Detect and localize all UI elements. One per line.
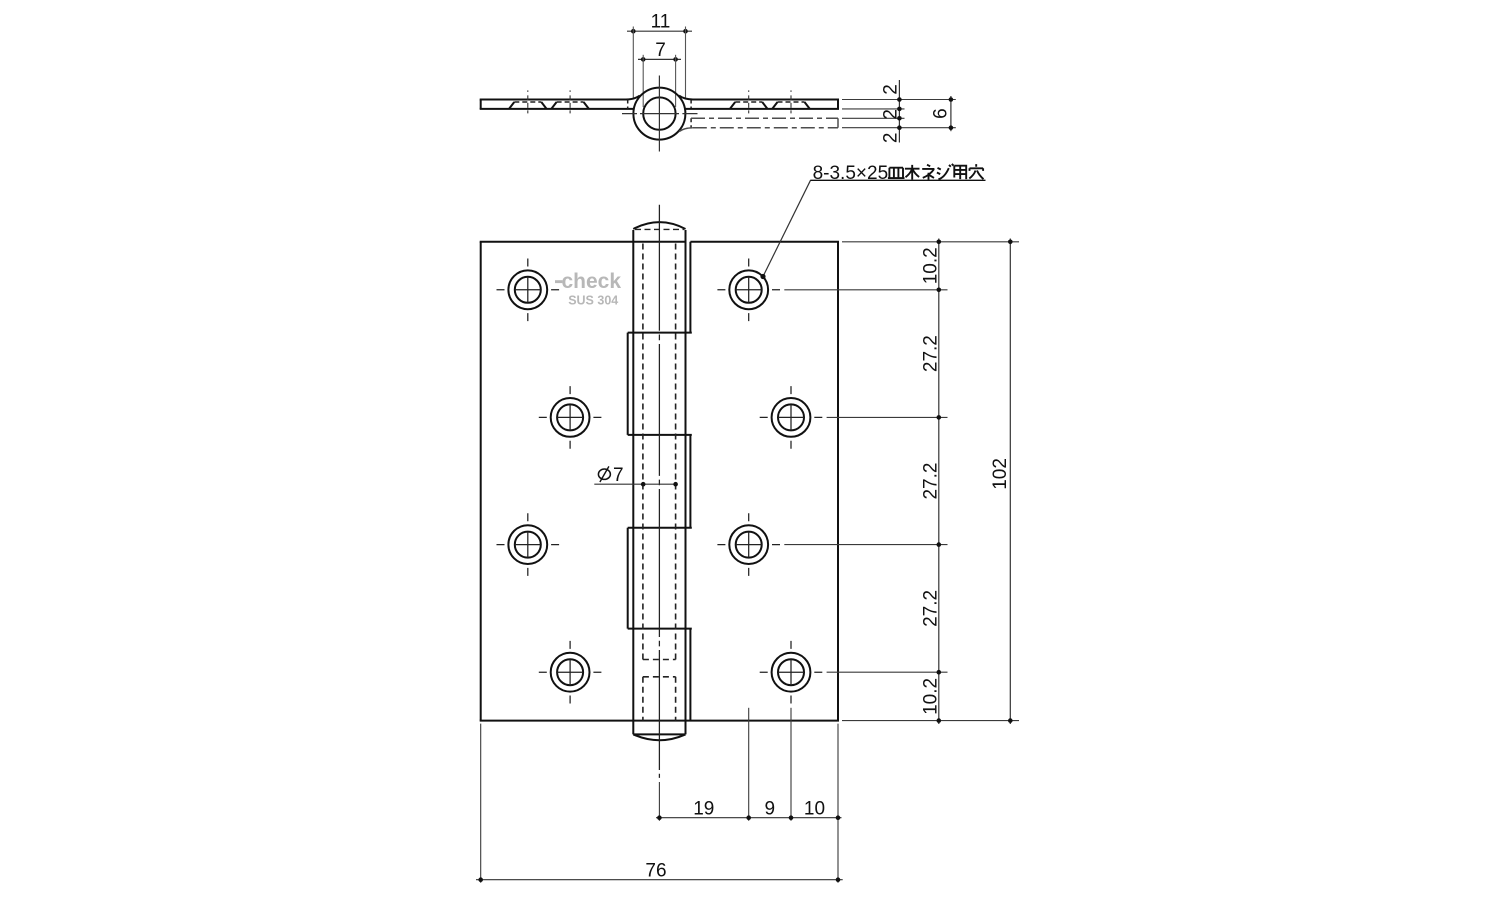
svg-text:10.2: 10.2 bbox=[921, 678, 942, 715]
svg-text:27.2: 27.2 bbox=[921, 463, 942, 500]
svg-text:7: 7 bbox=[613, 465, 624, 486]
svg-text:2: 2 bbox=[881, 133, 902, 144]
svg-text:10.2: 10.2 bbox=[921, 247, 942, 284]
svg-text:27.2: 27.2 bbox=[921, 590, 942, 627]
svg-text:76: 76 bbox=[645, 861, 666, 882]
svg-text:10: 10 bbox=[804, 799, 825, 820]
svg-text:8-3.5×25: 8-3.5×25 bbox=[813, 163, 889, 184]
svg-text:11: 11 bbox=[651, 12, 671, 33]
svg-text:27.2: 27.2 bbox=[921, 335, 942, 372]
svg-text:9: 9 bbox=[765, 799, 776, 820]
svg-text:7: 7 bbox=[655, 40, 666, 61]
svg-text:SUS 304: SUS 304 bbox=[568, 293, 618, 307]
svg-text:102: 102 bbox=[990, 458, 1011, 490]
svg-text:2: 2 bbox=[881, 84, 902, 95]
svg-text:6: 6 bbox=[931, 108, 952, 119]
svg-text:19: 19 bbox=[693, 799, 714, 820]
svg-text:2: 2 bbox=[881, 109, 902, 120]
svg-text:check: check bbox=[562, 270, 622, 293]
